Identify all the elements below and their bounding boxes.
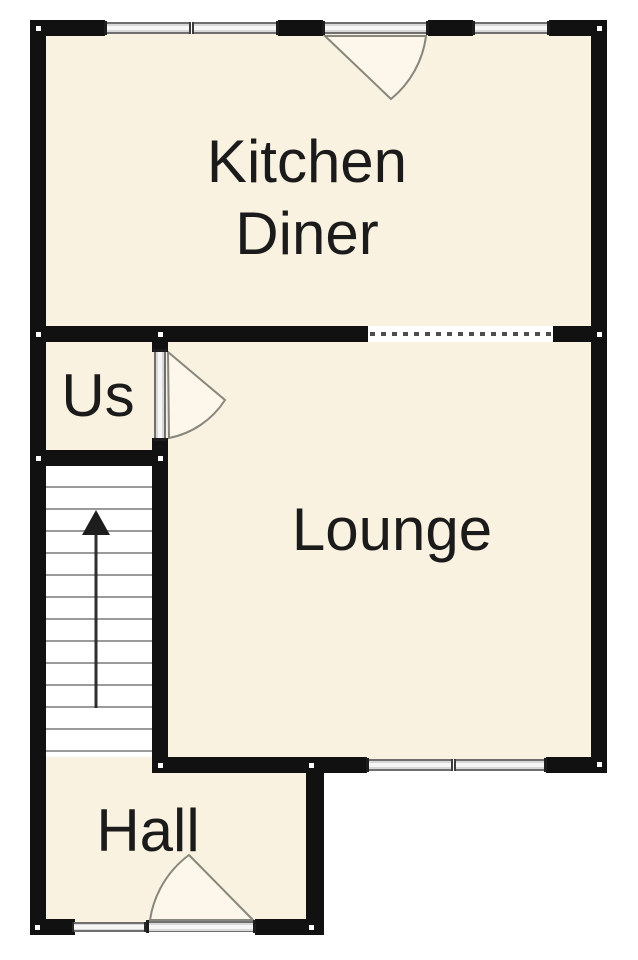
window-lounge-bottom [367, 759, 546, 771]
window-hall-bottom [73, 922, 145, 932]
door-kitchen-top [323, 22, 428, 34]
wall-joint-dot [597, 332, 602, 337]
wall-joint-dot [597, 762, 602, 767]
room-label-hall: Hall [48, 801, 248, 861]
window-mullion [189, 22, 194, 34]
wall-joint-dot [158, 456, 163, 461]
wall-top-seg3 [428, 20, 473, 36]
wall-joint-dot [309, 763, 314, 768]
wall-joint-dot [158, 332, 163, 337]
wall-joint-dot [36, 456, 41, 461]
wall-joint-dot [36, 332, 41, 337]
wall-joint-dot [36, 26, 41, 31]
wall-joint-dot [158, 763, 163, 768]
wall-lounge-bottom-seg1 [152, 757, 367, 773]
door-hall-entrance [147, 921, 255, 932]
room-label-kitchen-diner: Kitchen Diner [157, 126, 457, 270]
door-swing-kitchen [325, 36, 426, 99]
wall-right [591, 20, 607, 773]
wall-joint-dot [597, 26, 602, 31]
room-label-us: Us [36, 366, 160, 426]
door-swing-hall [150, 855, 253, 920]
room-label-lounge: Lounge [242, 500, 542, 560]
wall-mid-seg1 [30, 326, 368, 342]
wall-top-seg1 [30, 20, 105, 36]
door-swing-us [168, 352, 225, 438]
stairs-up-arrow-icon [82, 510, 110, 708]
room-label-kitchen-line2: Diner [157, 198, 457, 270]
wall-joint-dot [309, 925, 314, 930]
window-kitchen-top-left [105, 22, 278, 34]
window-kitchen-top-right [473, 22, 549, 34]
wall-left [30, 20, 46, 935]
wall-hall-right [306, 757, 324, 935]
wall-us-bottom [30, 450, 168, 466]
wall-stair-right [152, 450, 168, 773]
window-mullion [451, 759, 456, 771]
wall-joint-dot [35, 925, 40, 930]
floorplan: Kitchen Diner Us Lounge Hall [0, 0, 638, 960]
room-label-kitchen-line1: Kitchen [157, 126, 457, 198]
wall-top-seg2 [278, 20, 323, 36]
